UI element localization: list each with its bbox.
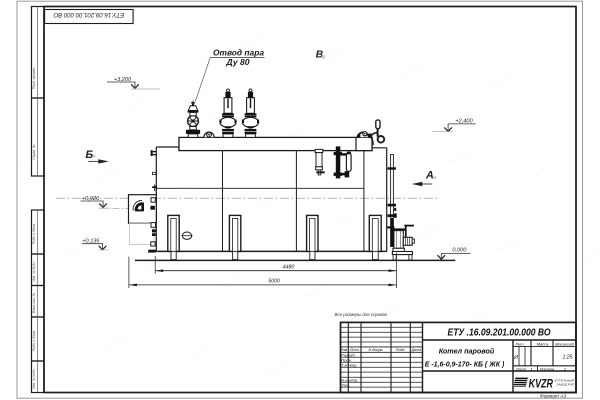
svg-text:Подп. и дата: Подп. и дата xyxy=(32,224,36,245)
svg-text:Ду 80: Ду 80 xyxy=(225,57,249,67)
svg-text:Инв. № подл.: Инв. № подл. xyxy=(32,368,36,389)
svg-text:Лист: Лист xyxy=(515,366,527,371)
svg-text:Справ. №: Справ. № xyxy=(32,144,36,160)
svg-text:Изм.: Изм. xyxy=(340,348,348,352)
svg-text:Перв. примен.: Перв. примен. xyxy=(32,67,36,90)
svg-text:Отвод пара: Отвод пара xyxy=(213,47,264,57)
svg-text:В: В xyxy=(316,50,324,61)
svg-text:4480: 4480 xyxy=(283,264,295,270)
svg-text:Подп.: Подп. xyxy=(396,348,406,352)
svg-text:А: А xyxy=(425,170,434,182)
svg-text:Б: Б xyxy=(85,149,93,161)
svg-text:Е -1,6-0,9-170- КБ ( ЖК ): Е -1,6-0,9-170- КБ ( ЖК ) xyxy=(425,361,505,368)
svg-text:Подп. и дата: Подп. и дата xyxy=(32,331,36,352)
svg-text:Дата: Дата xyxy=(411,348,422,352)
svg-text:ЗАВОД РЭП: ЗАВОД РЭП xyxy=(557,383,576,387)
svg-text:Инв. № дубл.: Инв. № дубл. xyxy=(32,261,36,281)
svg-text:0,000: 0,000 xyxy=(452,248,467,254)
svg-text:Лист: Лист xyxy=(349,348,360,352)
svg-text:Лит.: Лит. xyxy=(514,341,524,346)
svg-text:1:25: 1:25 xyxy=(562,355,572,361)
svg-text:N докум.: N докум. xyxy=(369,348,384,352)
svg-text:1: 1 xyxy=(530,366,532,371)
svg-text:Котел паровой: Котел паровой xyxy=(439,346,495,355)
svg-text:Т.контр.: Т.контр. xyxy=(341,363,357,368)
svg-text:И: И xyxy=(514,355,518,361)
svg-text:5000: 5000 xyxy=(268,279,280,285)
svg-text:Масштаб: Масштаб xyxy=(555,341,574,346)
svg-text:KVZR: KVZR xyxy=(529,378,554,390)
svg-text:Масса: Масса xyxy=(537,341,550,346)
svg-text:ЕТУ .16.09.201.00.000 ВО: ЕТУ .16.09.201.00.000 ВО xyxy=(448,328,551,339)
svg-text:Формат А3: Формат А3 xyxy=(540,394,567,400)
svg-text:Утв.: Утв. xyxy=(341,383,350,388)
svg-text:Листов: Листов xyxy=(539,366,555,371)
svg-text:Взам. инв. №: Взам. инв. № xyxy=(32,292,36,313)
svg-text:ЕТУ.16.09.201.00.000 ВО: ЕТУ.16.09.201.00.000 ВО xyxy=(53,11,124,18)
svg-text:Все размеры для справок: Все размеры для справок xyxy=(335,312,389,317)
svg-text:+2,400: +2,400 xyxy=(455,118,473,124)
